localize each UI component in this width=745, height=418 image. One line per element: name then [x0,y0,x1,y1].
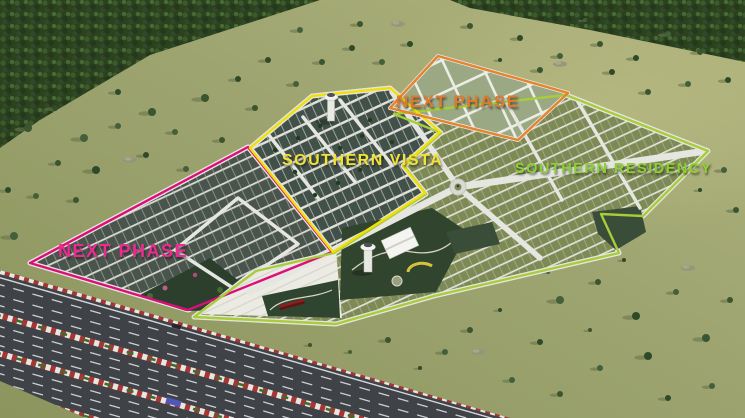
label-southern-residency: SOUTHERN RESIDENCY [515,161,712,177]
pond [392,276,402,286]
aerial-masterplan-render: NEXT PHASE SOUTHERN VISTA SOUTHERN RESID… [0,0,745,418]
roundabout [450,179,466,195]
label-next-phase-left: NEXT PHASE [58,241,188,261]
scene-svg: NEXT PHASE SOUTHERN VISTA SOUTHERN RESID… [0,0,745,418]
label-southern-vista: SOUTHERN VISTA [282,152,443,169]
label-next-phase-right: NEXT PHASE [396,92,520,111]
statue-icon [457,185,460,188]
